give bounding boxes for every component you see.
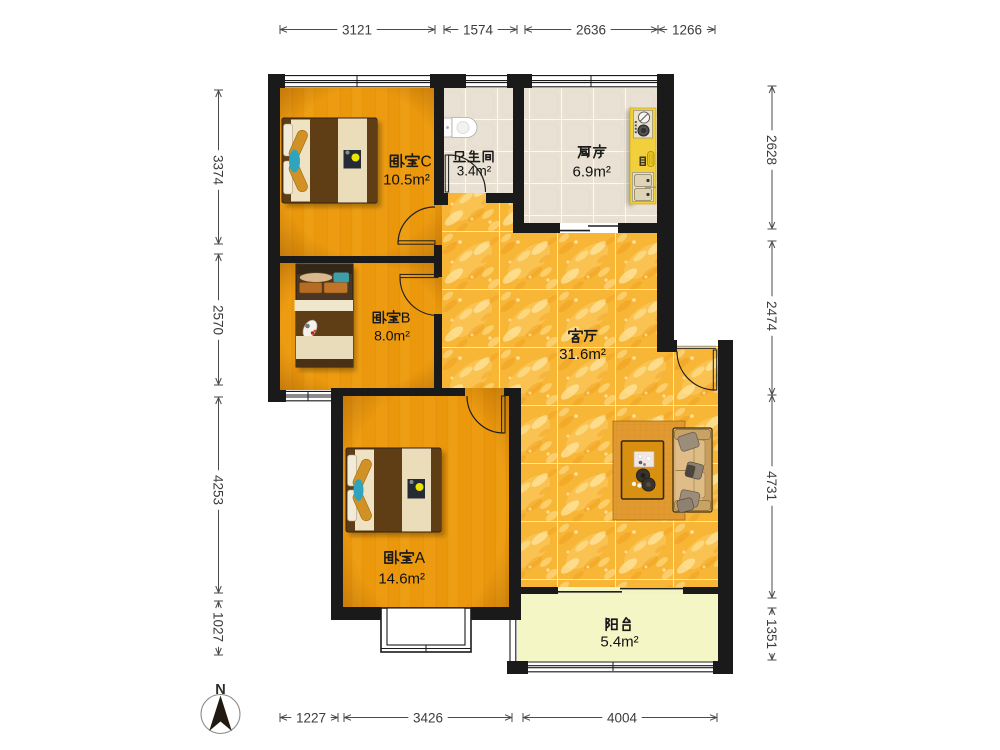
svg-text:3121: 3121 xyxy=(342,22,372,37)
svg-text:1351: 1351 xyxy=(764,619,779,649)
svg-text:10.5m²: 10.5m² xyxy=(383,172,430,189)
svg-text:1574: 1574 xyxy=(463,22,494,37)
svg-text:A: A xyxy=(415,550,426,567)
svg-text:1266: 1266 xyxy=(672,22,702,37)
svg-text:4731: 4731 xyxy=(764,471,779,501)
svg-text:1227: 1227 xyxy=(296,710,326,725)
svg-text:C: C xyxy=(421,154,432,171)
svg-text:3426: 3426 xyxy=(413,710,443,725)
svg-text:31.6m²: 31.6m² xyxy=(559,346,606,363)
svg-text:N: N xyxy=(215,682,225,698)
svg-text:6.9m²: 6.9m² xyxy=(573,164,611,181)
svg-text:14.6m²: 14.6m² xyxy=(378,571,425,588)
svg-text:2628: 2628 xyxy=(764,135,779,165)
svg-text:5.4m²: 5.4m² xyxy=(600,634,638,651)
svg-text:4253: 4253 xyxy=(211,475,226,505)
svg-text:3.4m²: 3.4m² xyxy=(457,164,492,179)
svg-text:B: B xyxy=(401,311,411,327)
svg-text:1027: 1027 xyxy=(211,612,226,642)
svg-text:2636: 2636 xyxy=(576,22,606,37)
svg-text:8.0m²: 8.0m² xyxy=(374,327,410,343)
svg-text:3374: 3374 xyxy=(211,155,226,186)
svg-text:2570: 2570 xyxy=(211,305,226,335)
svg-text:2474: 2474 xyxy=(764,301,779,332)
svg-text:4004: 4004 xyxy=(607,710,638,725)
